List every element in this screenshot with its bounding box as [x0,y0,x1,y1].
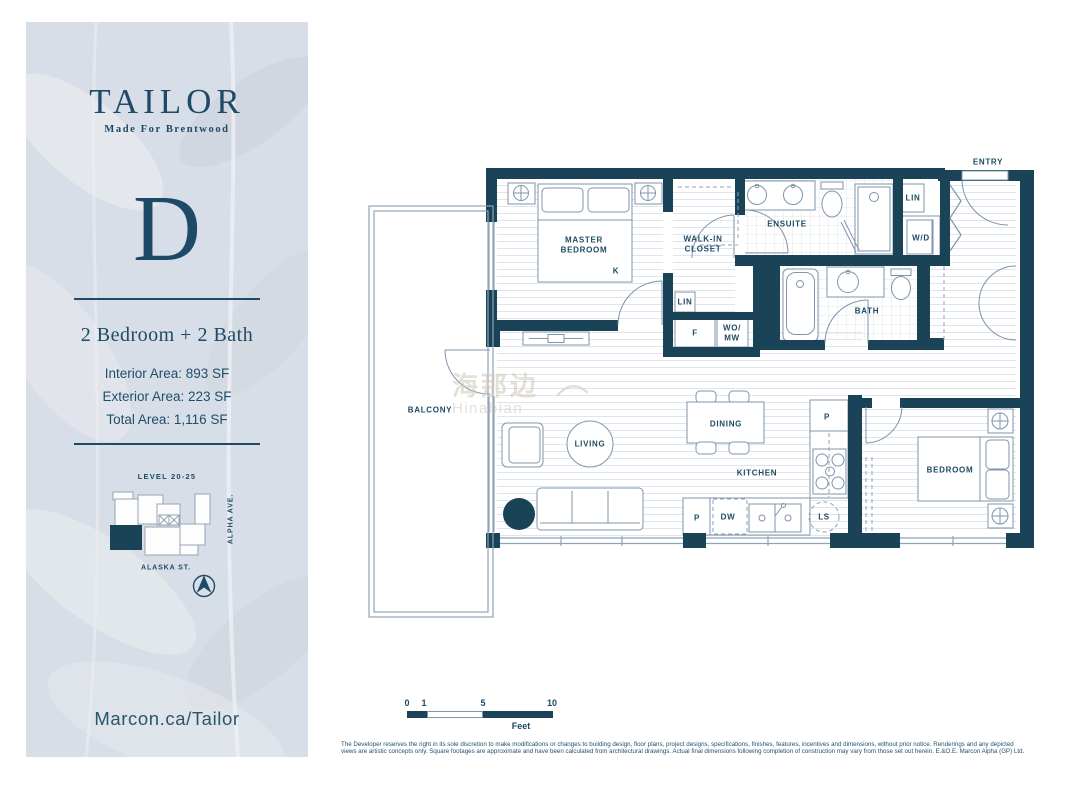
nightstand-light-left [508,183,535,204]
room-label-living: LIVING [575,440,606,449]
floorplan-sheet: TAILOR Made For Brentwood D 2 Bedroom + … [0,0,1080,795]
scale-tick-5: 5 [480,698,485,708]
scale-segment-dark-2 [483,711,553,718]
room-label-walkin-line1: WALK-IN [683,235,722,244]
room-label-entry: ENTRY [973,158,1003,167]
label-washer-dryer: W/D [912,234,930,243]
room-label-balcony: BALCONY [408,406,452,415]
scale-unit-label: Feet [512,721,531,731]
label-microwave: MW [724,334,740,343]
watermark-en: Hinabian [452,401,539,418]
watermark-cn: 海那边 [452,372,539,401]
living-bottom-window [500,536,683,546]
room-label-master-line2: BEDROOM [561,246,608,255]
scale-tick-10: 10 [547,698,557,708]
watermark: 海那边 Hinabian [452,372,539,417]
label-lazy-susan: LS [818,513,830,522]
wall-oven-microwave-box [717,318,748,347]
room-label-dining: DINING [710,420,742,429]
label-linen-entry: LIN [906,194,921,203]
ensuite-vanity [737,181,815,210]
scale-bar: 0 1 5 10 Feet [400,698,575,734]
room-label-bath: BATH [855,307,879,316]
label-dishwasher: DW [721,513,736,522]
room-label-bedroom: BEDROOM [927,466,974,475]
room-label-kitchen: KITCHEN [737,469,777,478]
bedroom-nightstand-bottom [988,504,1013,528]
ensuite-toilet [821,182,843,217]
disclaimer-line2: views are artistic concepts only. Square… [341,748,1024,755]
round-side-table [503,498,535,530]
media-console [523,332,589,345]
nightstand-light-right [635,183,662,204]
armchair [502,423,543,467]
disclaimer-line1: The Developer reserves the right in its … [341,741,1014,748]
label-pantry-lower: P [694,514,700,523]
label-fridge: F [692,329,698,338]
scale-segment-light [427,711,483,718]
floor-plan-drawing [0,0,1080,795]
label-wall-oven: WO/ [723,324,741,333]
sofa [537,488,643,530]
bath-toilet [891,269,911,300]
scale-tick-0: 0 [404,698,409,708]
room-label-ensuite: ENSUITE [767,220,807,229]
scale-tick-1: 1 [421,698,426,708]
bath-vanity [827,267,884,297]
room-label-master-line1: MASTER [565,236,603,245]
bedroom-window [900,536,1006,546]
label-pantry-upper: P [824,413,830,422]
room-label-walkin-line2: CLOSET [685,245,722,254]
entry-door-panel [962,171,1008,180]
kitchen-sink [749,504,801,533]
label-linen-closet: LIN [678,298,693,307]
bath-tub [783,269,818,341]
bedroom-nightstand-top [988,409,1013,433]
bed-size-label: K [613,267,619,276]
scale-segment-dark-1 [407,711,427,718]
kitchen-bottom-window [706,536,830,546]
